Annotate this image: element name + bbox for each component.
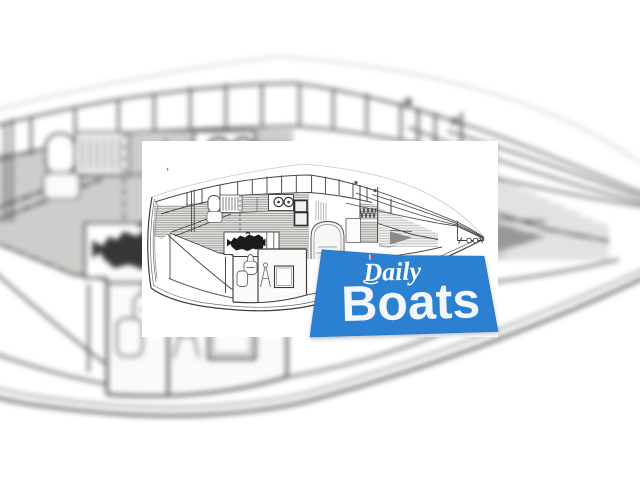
- svg-text:Boats: Boats: [340, 272, 480, 332]
